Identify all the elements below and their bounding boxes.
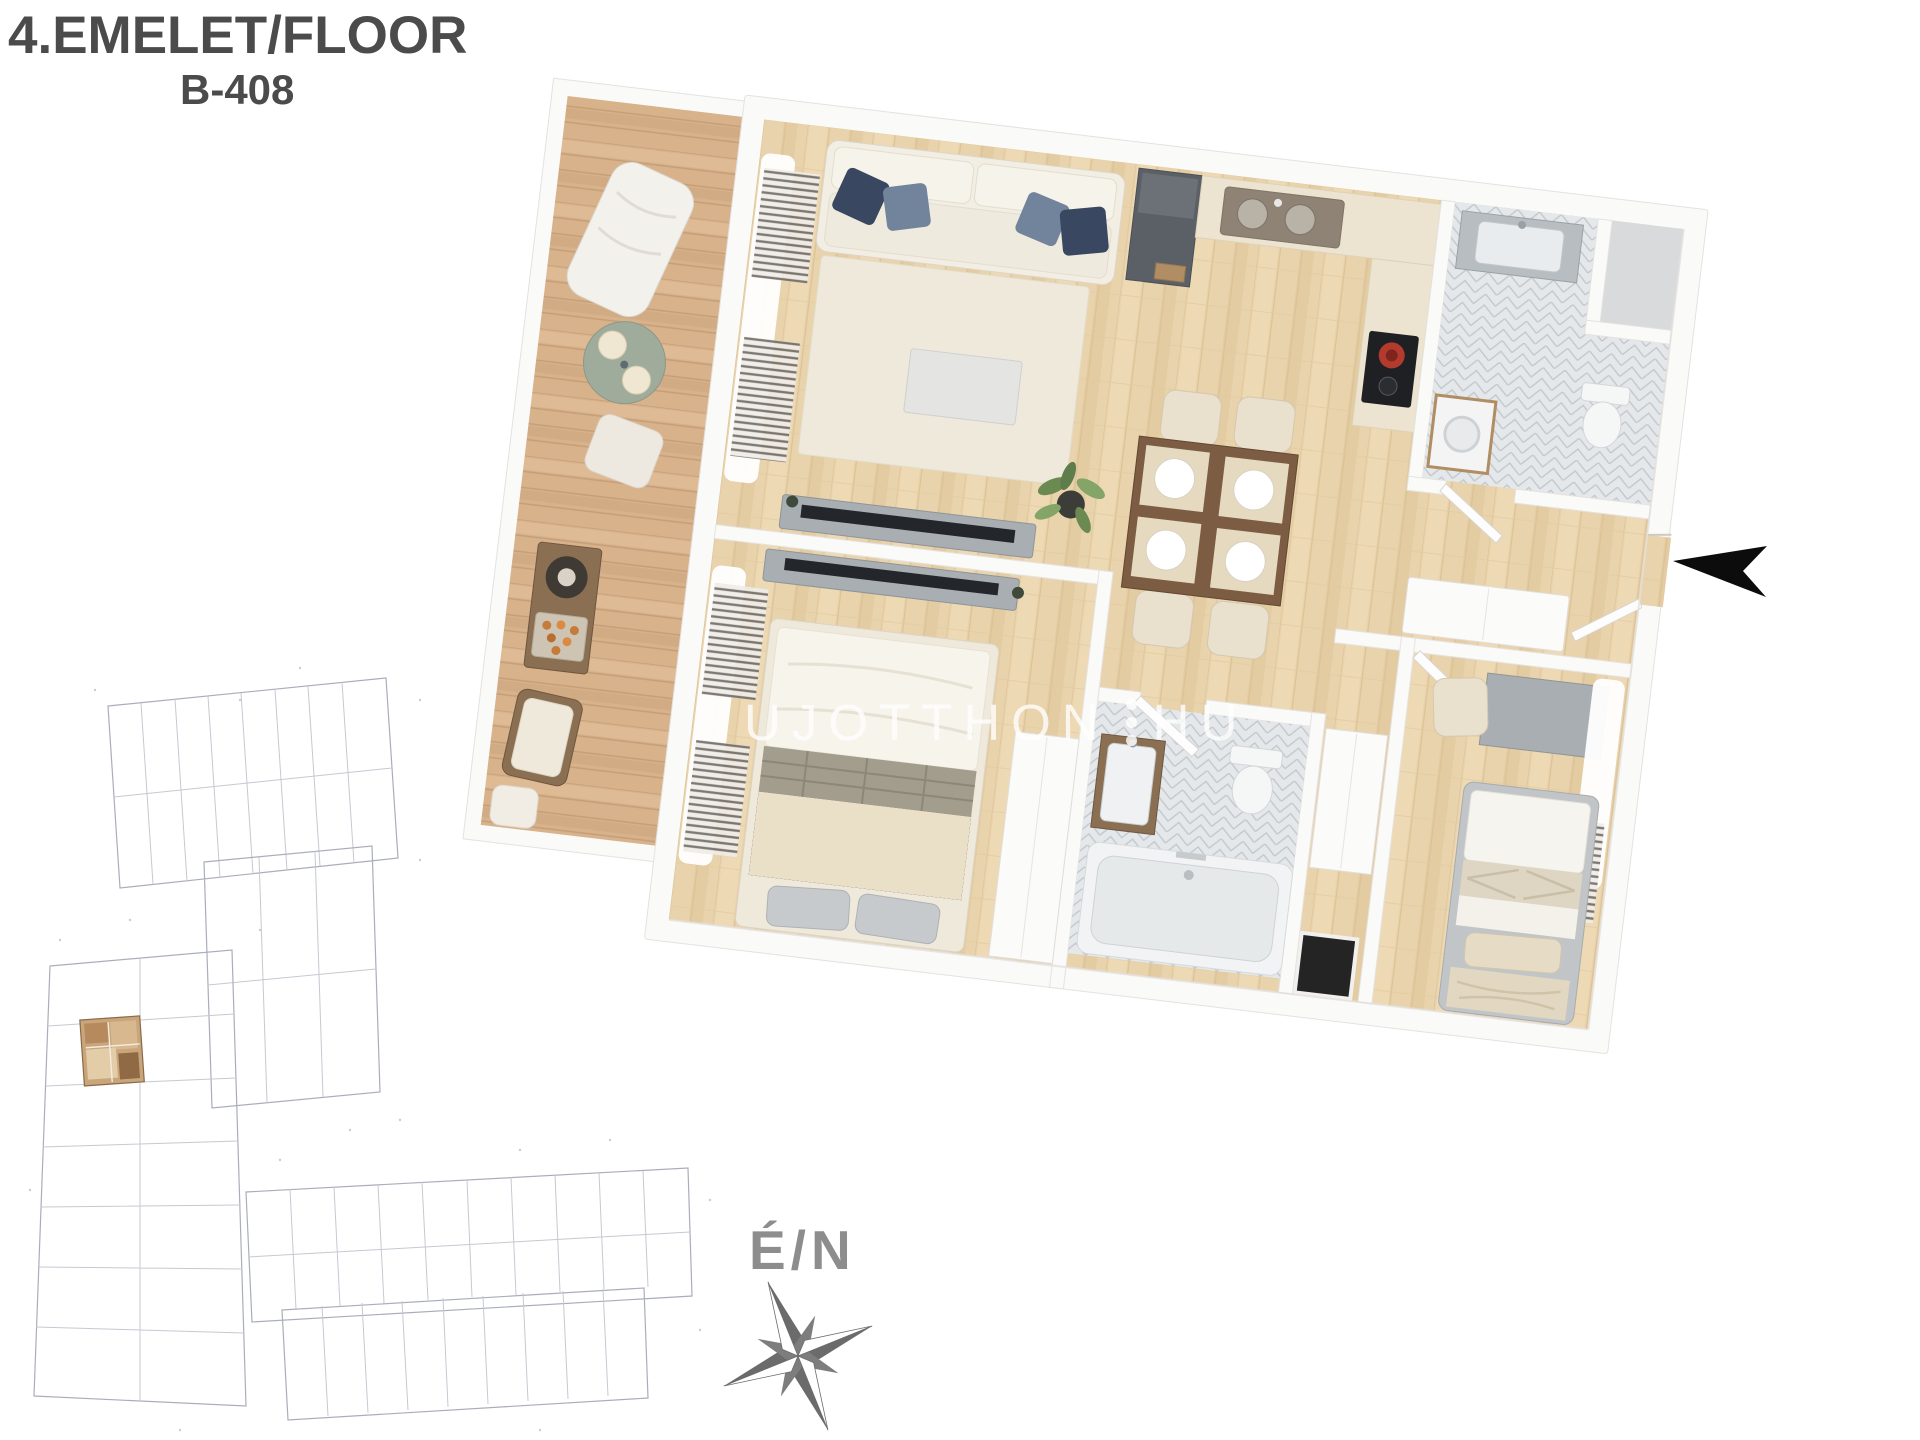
dining-chair <box>1233 396 1297 455</box>
storage-closet <box>1585 219 1684 344</box>
utility-shaft <box>1295 933 1358 999</box>
title-block: 4.EMELET/FLOOR B-408 <box>8 8 528 114</box>
single-bed <box>1438 781 1600 1025</box>
site-plan-highlighted-unit <box>80 1016 144 1086</box>
watermark-part2: HU <box>1153 693 1249 752</box>
page-title: 4.EMELET/FLOOR <box>8 8 528 64</box>
washing-machine <box>1428 395 1496 474</box>
unit-code: B-408 <box>180 66 528 114</box>
dining-chair <box>1206 600 1270 660</box>
bathtub <box>1076 841 1294 977</box>
entrance-arrow-icon <box>1673 546 1767 597</box>
cooktop <box>1361 331 1419 408</box>
floorplan-page: 4.EMELET/FLOOR B-408 UJOTTHON HU É/N <box>0 0 1920 1440</box>
apartment-3d-plan <box>454 72 1710 1054</box>
dining-chair <box>1159 389 1223 448</box>
terrace-pouf <box>489 784 539 829</box>
compass-label: É/N <box>749 1218 856 1282</box>
dining-chair <box>1131 589 1195 649</box>
coffee-table <box>904 348 1023 425</box>
double-bed <box>735 618 1000 953</box>
desk-chair <box>1433 677 1488 736</box>
watermark-part1: UJOTTHON <box>744 693 1110 752</box>
watermark: UJOTTHON HU <box>744 693 1248 752</box>
watermark-dots-icon <box>1126 699 1137 746</box>
